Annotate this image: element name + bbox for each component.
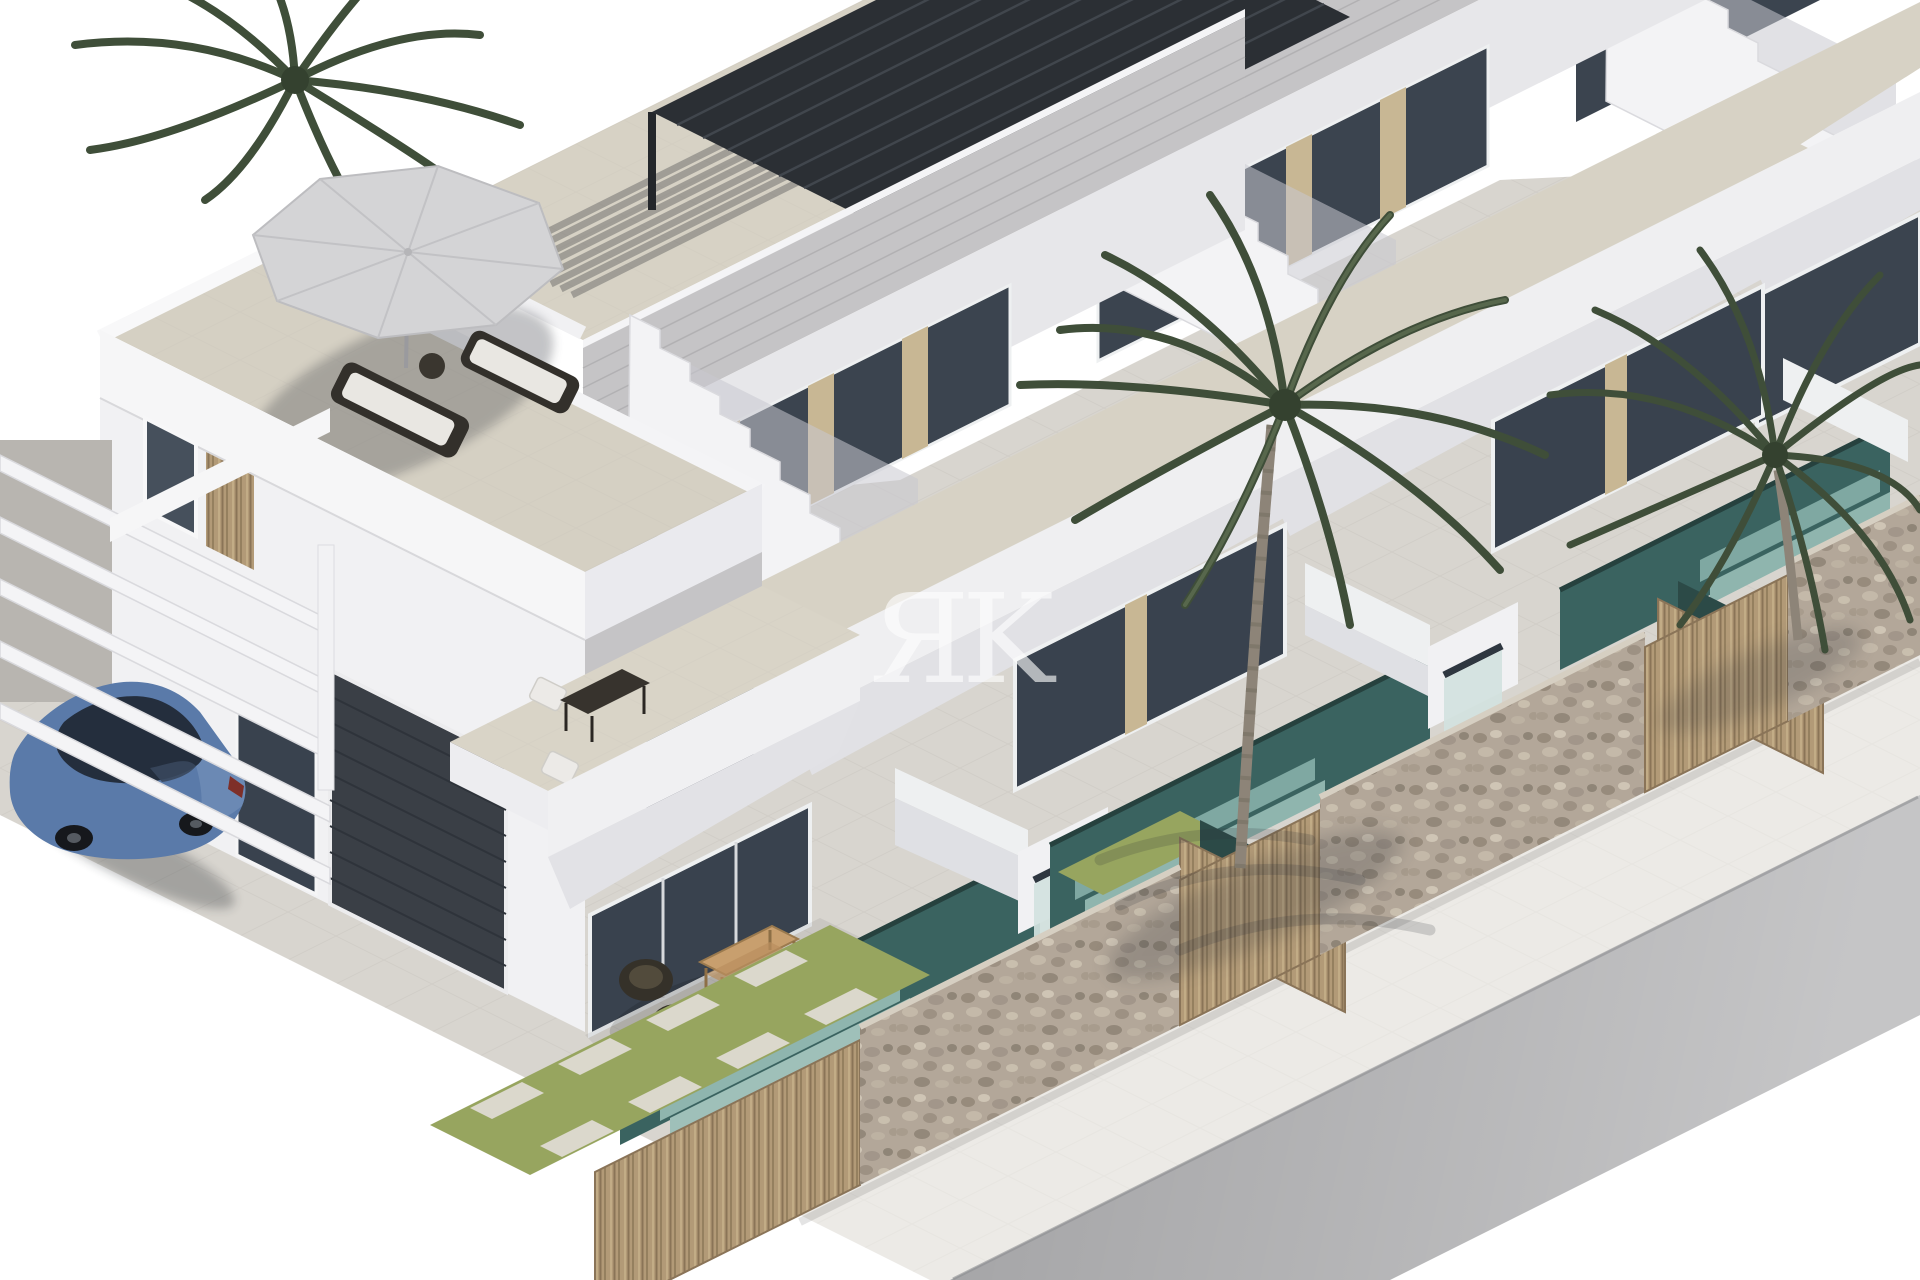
render-image: ЯK xyxy=(0,0,1920,1280)
louvre-panel xyxy=(1605,354,1627,495)
side-table xyxy=(419,353,445,379)
scene-render: ЯK xyxy=(0,0,1920,1280)
louvre-panel xyxy=(902,326,928,459)
watermark-text: ЯK xyxy=(870,568,1057,712)
louvre-panel xyxy=(1380,87,1406,220)
louvre-panel xyxy=(1125,594,1147,735)
carport-post xyxy=(318,545,334,790)
